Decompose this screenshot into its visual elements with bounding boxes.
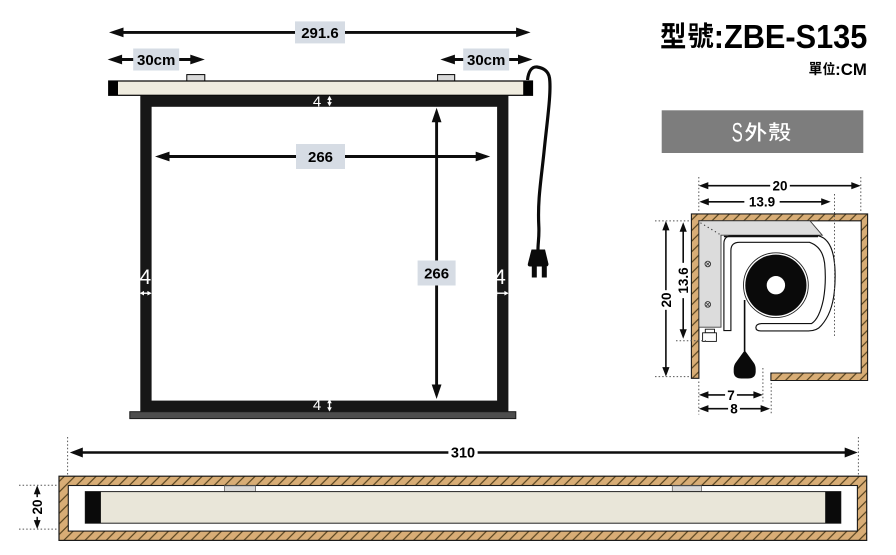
svg-text:13.6: 13.6 xyxy=(676,267,691,294)
svg-text:4: 4 xyxy=(494,266,506,289)
svg-text:8: 8 xyxy=(730,402,738,417)
svg-text:266: 266 xyxy=(308,149,333,166)
svg-text:20: 20 xyxy=(659,292,674,307)
svg-text:4: 4 xyxy=(313,93,321,110)
svg-text:4: 4 xyxy=(313,397,321,414)
svg-text:13.9: 13.9 xyxy=(749,195,775,210)
svg-text:310: 310 xyxy=(451,446,475,462)
svg-text:30cm: 30cm xyxy=(137,52,175,69)
svg-text:S: S xyxy=(732,118,743,148)
svg-text:266: 266 xyxy=(424,265,449,282)
svg-text:20: 20 xyxy=(772,179,787,194)
svg-text::CM: :CM xyxy=(835,61,867,79)
svg-text:20: 20 xyxy=(30,499,45,514)
svg-text:30cm: 30cm xyxy=(467,52,505,69)
svg-text:4: 4 xyxy=(140,266,152,289)
svg-text::ZBE-S135: :ZBE-S135 xyxy=(714,18,868,55)
svg-text:291.6: 291.6 xyxy=(301,25,339,42)
